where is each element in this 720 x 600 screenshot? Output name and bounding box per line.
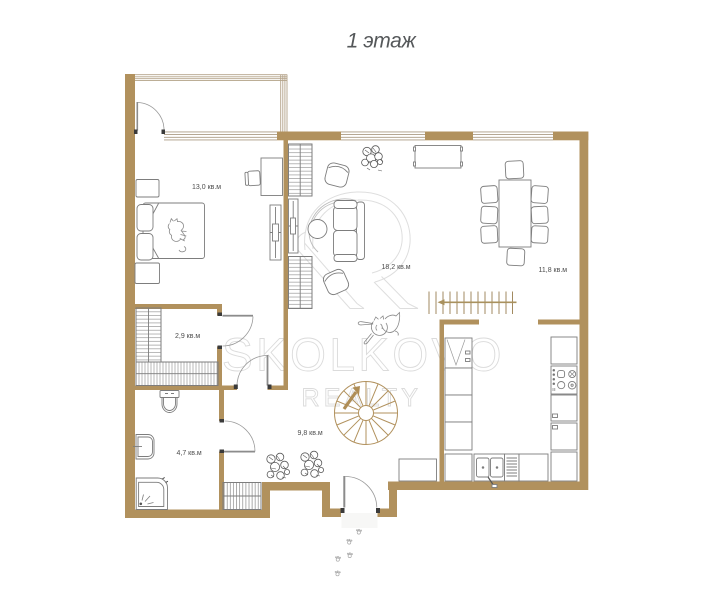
- svg-text:11,8 кв.м: 11,8 кв.м: [539, 267, 568, 274]
- svg-text:4,7 кв.м: 4,7 кв.м: [177, 450, 202, 457]
- svg-text:1 этаж: 1 этаж: [347, 30, 418, 53]
- svg-text:13,0 кв.м: 13,0 кв.м: [192, 184, 221, 191]
- svg-text:REALTY: REALTY: [302, 384, 423, 412]
- svg-text:9,8 кв.м: 9,8 кв.м: [298, 430, 323, 437]
- svg-text:2,9 кв.м: 2,9 кв.м: [175, 333, 200, 340]
- svg-text:18,2 кв.м: 18,2 кв.м: [382, 264, 411, 271]
